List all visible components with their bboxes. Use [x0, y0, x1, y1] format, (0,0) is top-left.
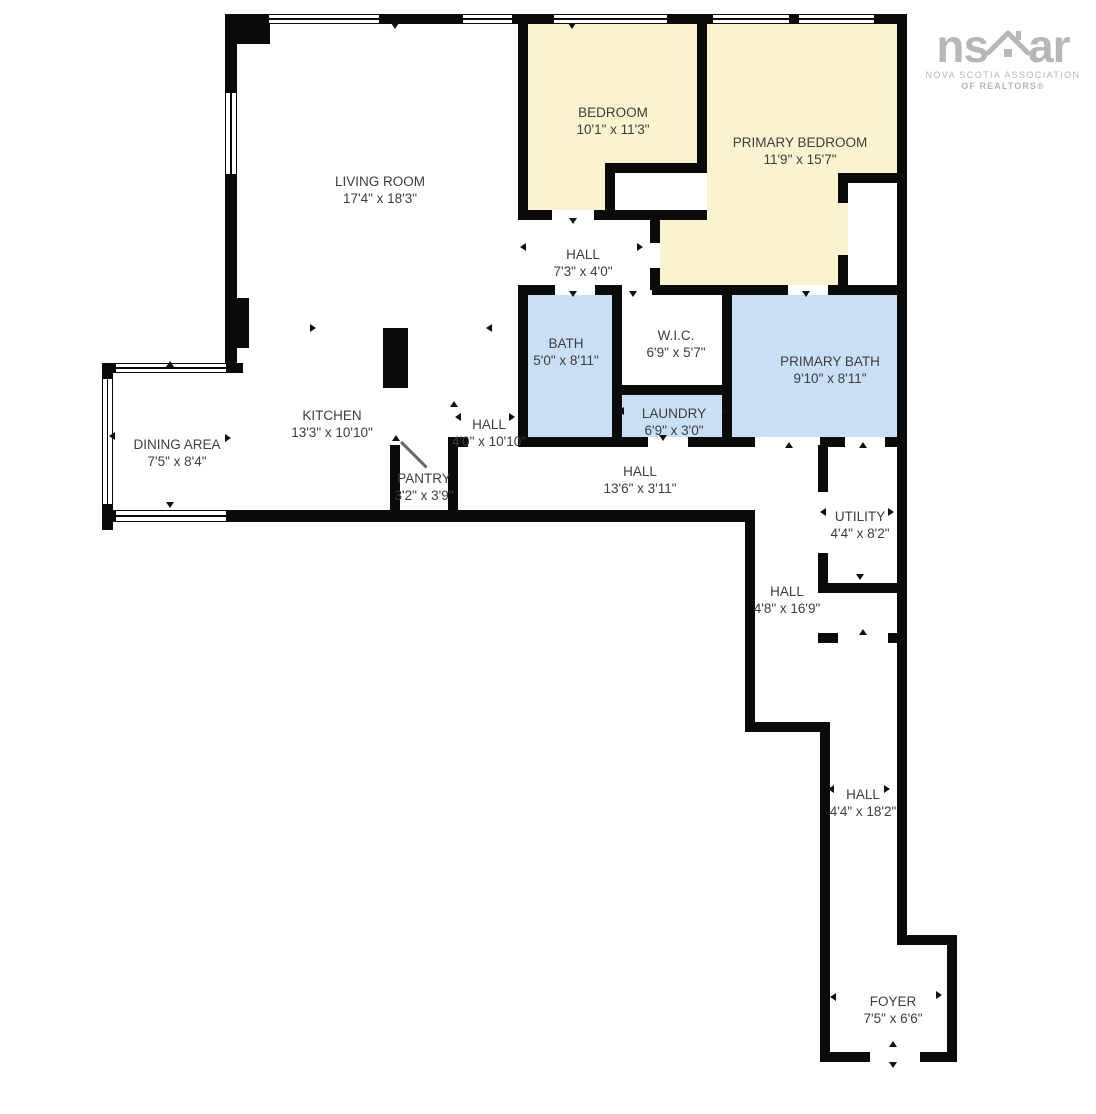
room-name: BEDROOM	[576, 104, 649, 121]
room-name: HALL	[754, 583, 821, 600]
door-arrow-icon	[802, 291, 810, 297]
wall-segment	[605, 163, 707, 173]
wall-segment	[518, 210, 552, 220]
primary-closet-fill	[848, 183, 897, 285]
label-dining-area: DINING AREA7'5" x 8'4"	[133, 436, 220, 470]
label-primary-bedroom: PRIMARY BEDROOM11'9" x 15'7"	[733, 134, 868, 168]
door-arrow-icon	[486, 324, 492, 332]
door-arrow-icon	[889, 1062, 897, 1068]
door-arrow-icon	[785, 442, 793, 448]
logo-text-ar: ar	[1028, 24, 1069, 68]
room-name: PRIMARY BATH	[780, 353, 880, 370]
door-arrow-icon	[166, 361, 174, 367]
label-primary-bath: PRIMARY BATH9'10" x 8'11"	[780, 353, 880, 387]
door-arrow-icon	[830, 993, 836, 1001]
wall-segment	[820, 722, 830, 1062]
wall-segment	[697, 24, 707, 173]
door-arrow-icon	[450, 401, 458, 407]
door-arrow-icon	[637, 243, 643, 251]
room-dims: 17'4" x 18'3"	[335, 190, 425, 207]
door-arrow-icon	[618, 407, 624, 415]
door-arrow-icon	[569, 291, 577, 297]
room-name: LAUNDRY	[642, 405, 706, 422]
wall-segment	[920, 1052, 957, 1062]
wall-segment	[605, 163, 615, 218]
window	[115, 510, 227, 522]
door-arrow-icon	[889, 1041, 897, 1047]
door-arrow-icon	[166, 502, 174, 508]
wall-segment	[818, 445, 828, 492]
door-arrow-icon	[820, 508, 826, 516]
bedroom-closet-fill	[615, 173, 697, 210]
wall-segment	[612, 385, 732, 395]
door-arrow-icon	[568, 23, 576, 29]
window	[462, 14, 513, 24]
room-name: UTILITY	[830, 508, 889, 525]
floor-plan: LIVING ROOM17'4" x 18'3" BEDROOM10'1" x …	[0, 0, 1096, 1114]
wall-segment	[745, 722, 830, 732]
wall-segment	[838, 255, 848, 285]
room-dims: 10'1" x 11'3"	[576, 121, 649, 138]
label-hall-corridor: HALL4'4" x 18'2"	[830, 786, 897, 820]
room-name: HALL	[830, 786, 897, 803]
logo-subtitle-2: OF REALTORS®	[916, 81, 1090, 91]
wall-segment	[818, 553, 828, 585]
room-name: DINING AREA	[133, 436, 220, 453]
window	[268, 14, 380, 24]
wall-segment	[828, 285, 907, 295]
label-hall-main: HALL13'6" x 3'11"	[603, 463, 676, 497]
label-living-room: LIVING ROOM17'4" x 18'3"	[335, 173, 425, 207]
wall-segment	[745, 520, 755, 732]
door-arrow-icon	[722, 407, 728, 415]
door-arrow-icon	[391, 23, 399, 29]
room-name: FOYER	[863, 993, 922, 1010]
wall-segment	[947, 935, 957, 1062]
window	[102, 378, 113, 505]
room-dims: 13'6" x 3'11"	[603, 480, 676, 497]
nsar-logo-wordmark: ns ar	[916, 24, 1090, 68]
wall-segment	[612, 285, 622, 445]
door-arrow-icon	[109, 432, 115, 440]
wall-segment	[225, 298, 249, 348]
door-arrow-icon	[936, 991, 942, 999]
label-hall-mid: HALL4'0" x 10'10"	[452, 416, 526, 450]
pantry-door-leaf	[400, 441, 427, 468]
label-hall-south: HALL4'8" x 16'9"	[754, 583, 821, 617]
wall-segment	[225, 14, 270, 44]
room-dims: 13'3" x 10'10"	[291, 424, 373, 441]
logo-subtitle-1: NOVA SCOTIA ASSOCIATION	[916, 70, 1090, 80]
room-dims: 7'3" x 4'0"	[553, 263, 612, 280]
door-arrow-icon	[859, 629, 867, 635]
room-dims: 3'2" x 3'9"	[394, 487, 453, 504]
label-utility: UTILITY4'4" x 8'2"	[830, 508, 889, 542]
room-name: LIVING ROOM	[335, 173, 425, 190]
room-name: HALL	[553, 246, 612, 263]
label-laundry: LAUNDRY6'9" x 3'0"	[642, 405, 706, 439]
door-arrow-icon	[629, 291, 637, 297]
room-name: HALL	[603, 463, 676, 480]
label-pantry: PANTRY3'2" x 3'9"	[394, 470, 453, 504]
room-dims: 7'5" x 6'6"	[863, 1010, 922, 1027]
room-dims: 11'9" x 15'7"	[733, 151, 868, 168]
room-dims: 6'9" x 3'0"	[642, 422, 706, 439]
nsar-logo: ns ar NOVA SCOTIA ASSOCIATION OF REALTOR…	[916, 24, 1090, 91]
wall-segment	[383, 328, 408, 388]
wall-segment	[838, 173, 848, 203]
wall-segment	[518, 24, 528, 218]
window	[225, 92, 237, 175]
label-wic: W.I.C.6'9" x 5'7"	[646, 327, 705, 361]
room-dims: 9'10" x 8'11"	[780, 370, 880, 387]
wall-segment	[838, 173, 907, 183]
primary-bedroom-fill-ext	[660, 220, 707, 285]
door-arrow-icon	[856, 574, 864, 580]
room-dims: 5'0" x 8'11"	[533, 352, 599, 369]
logo-text-ns: ns	[936, 24, 988, 68]
house-roof-icon	[985, 24, 1031, 66]
door-arrow-icon	[569, 218, 577, 224]
room-dims: 4'8" x 16'9"	[754, 600, 821, 617]
label-bath: BATH5'0" x 8'11"	[533, 335, 599, 369]
door-arrow-icon	[520, 243, 526, 251]
wall-segment	[818, 633, 838, 643]
door-arrow-icon	[310, 324, 316, 332]
room-name: HALL	[452, 416, 526, 433]
room-name: W.I.C.	[646, 327, 705, 344]
wall-segment	[885, 437, 907, 447]
label-kitchen: KITCHEN13'3" x 10'10"	[291, 407, 373, 441]
door-arrow-icon	[859, 442, 867, 448]
label-bedroom: BEDROOM10'1" x 11'3"	[576, 104, 649, 138]
room-dims: 4'4" x 8'2"	[830, 525, 889, 542]
room-name: PANTRY	[394, 470, 453, 487]
wall-segment	[818, 583, 907, 593]
wall-segment	[652, 285, 788, 295]
label-foyer: FOYER7'5" x 6'6"	[863, 993, 922, 1027]
room-name: PRIMARY BEDROOM	[733, 134, 868, 151]
window	[712, 14, 790, 24]
wall-segment	[888, 633, 907, 643]
wall-segment	[518, 437, 648, 447]
room-dims: 7'5" x 8'4"	[133, 453, 220, 470]
door-arrow-icon	[392, 435, 400, 441]
wall-segment	[650, 220, 660, 243]
room-name: KITCHEN	[291, 407, 373, 424]
wall-segment	[897, 14, 907, 945]
room-name: BATH	[533, 335, 599, 352]
room-dims: 4'0" x 10'10"	[452, 433, 526, 450]
room-dims: 6'9" x 5'7"	[646, 344, 705, 361]
wall-segment	[722, 285, 732, 445]
label-hall-upper: HALL7'3" x 4'0"	[553, 246, 612, 280]
window	[798, 14, 875, 24]
door-arrow-icon	[225, 434, 231, 442]
room-dims: 4'4" x 18'2"	[830, 803, 897, 820]
